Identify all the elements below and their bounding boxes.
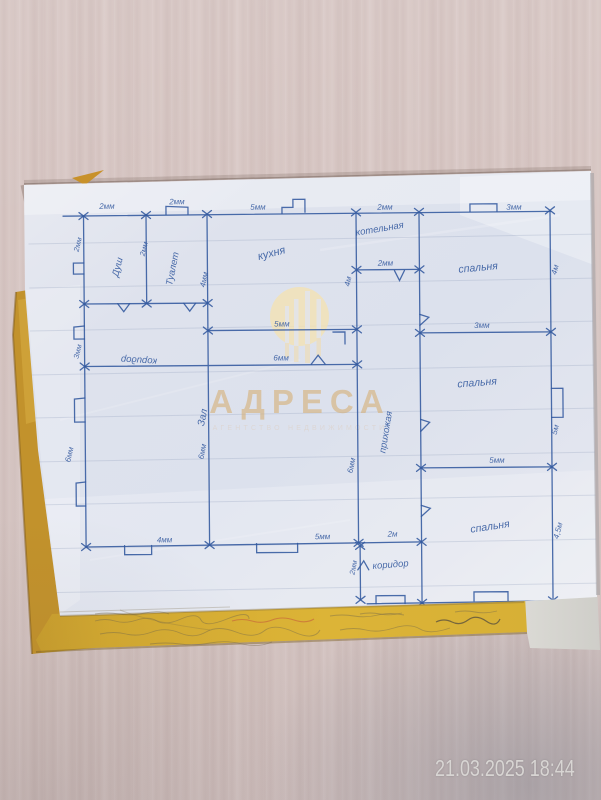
svg-text:2мм: 2мм xyxy=(376,203,393,212)
svg-text:2мм: 2мм xyxy=(168,197,185,206)
svg-text:3мм: 3мм xyxy=(474,321,490,330)
svg-text:АГЕНТСТВО НЕДВИЖИМОСТИ: АГЕНТСТВО НЕДВИЖИМОСТИ xyxy=(213,425,388,432)
svg-text:АДРЕСА: АДРЕСА xyxy=(209,383,390,420)
svg-text:5мм: 5мм xyxy=(315,532,331,541)
svg-text:2м: 2м xyxy=(387,530,399,539)
svg-text:коридор: коридор xyxy=(121,353,158,366)
svg-text:2мм: 2мм xyxy=(377,259,394,268)
svg-text:2мм: 2мм xyxy=(98,202,115,211)
svg-text:5мм: 5мм xyxy=(489,456,505,465)
svg-text:5мм: 5мм xyxy=(250,203,266,212)
svg-text:3мм: 3мм xyxy=(506,203,522,212)
svg-text:4мм: 4мм xyxy=(157,535,173,544)
svg-text:6мм: 6мм xyxy=(273,353,289,362)
svg-text:5мм: 5мм xyxy=(274,319,290,328)
